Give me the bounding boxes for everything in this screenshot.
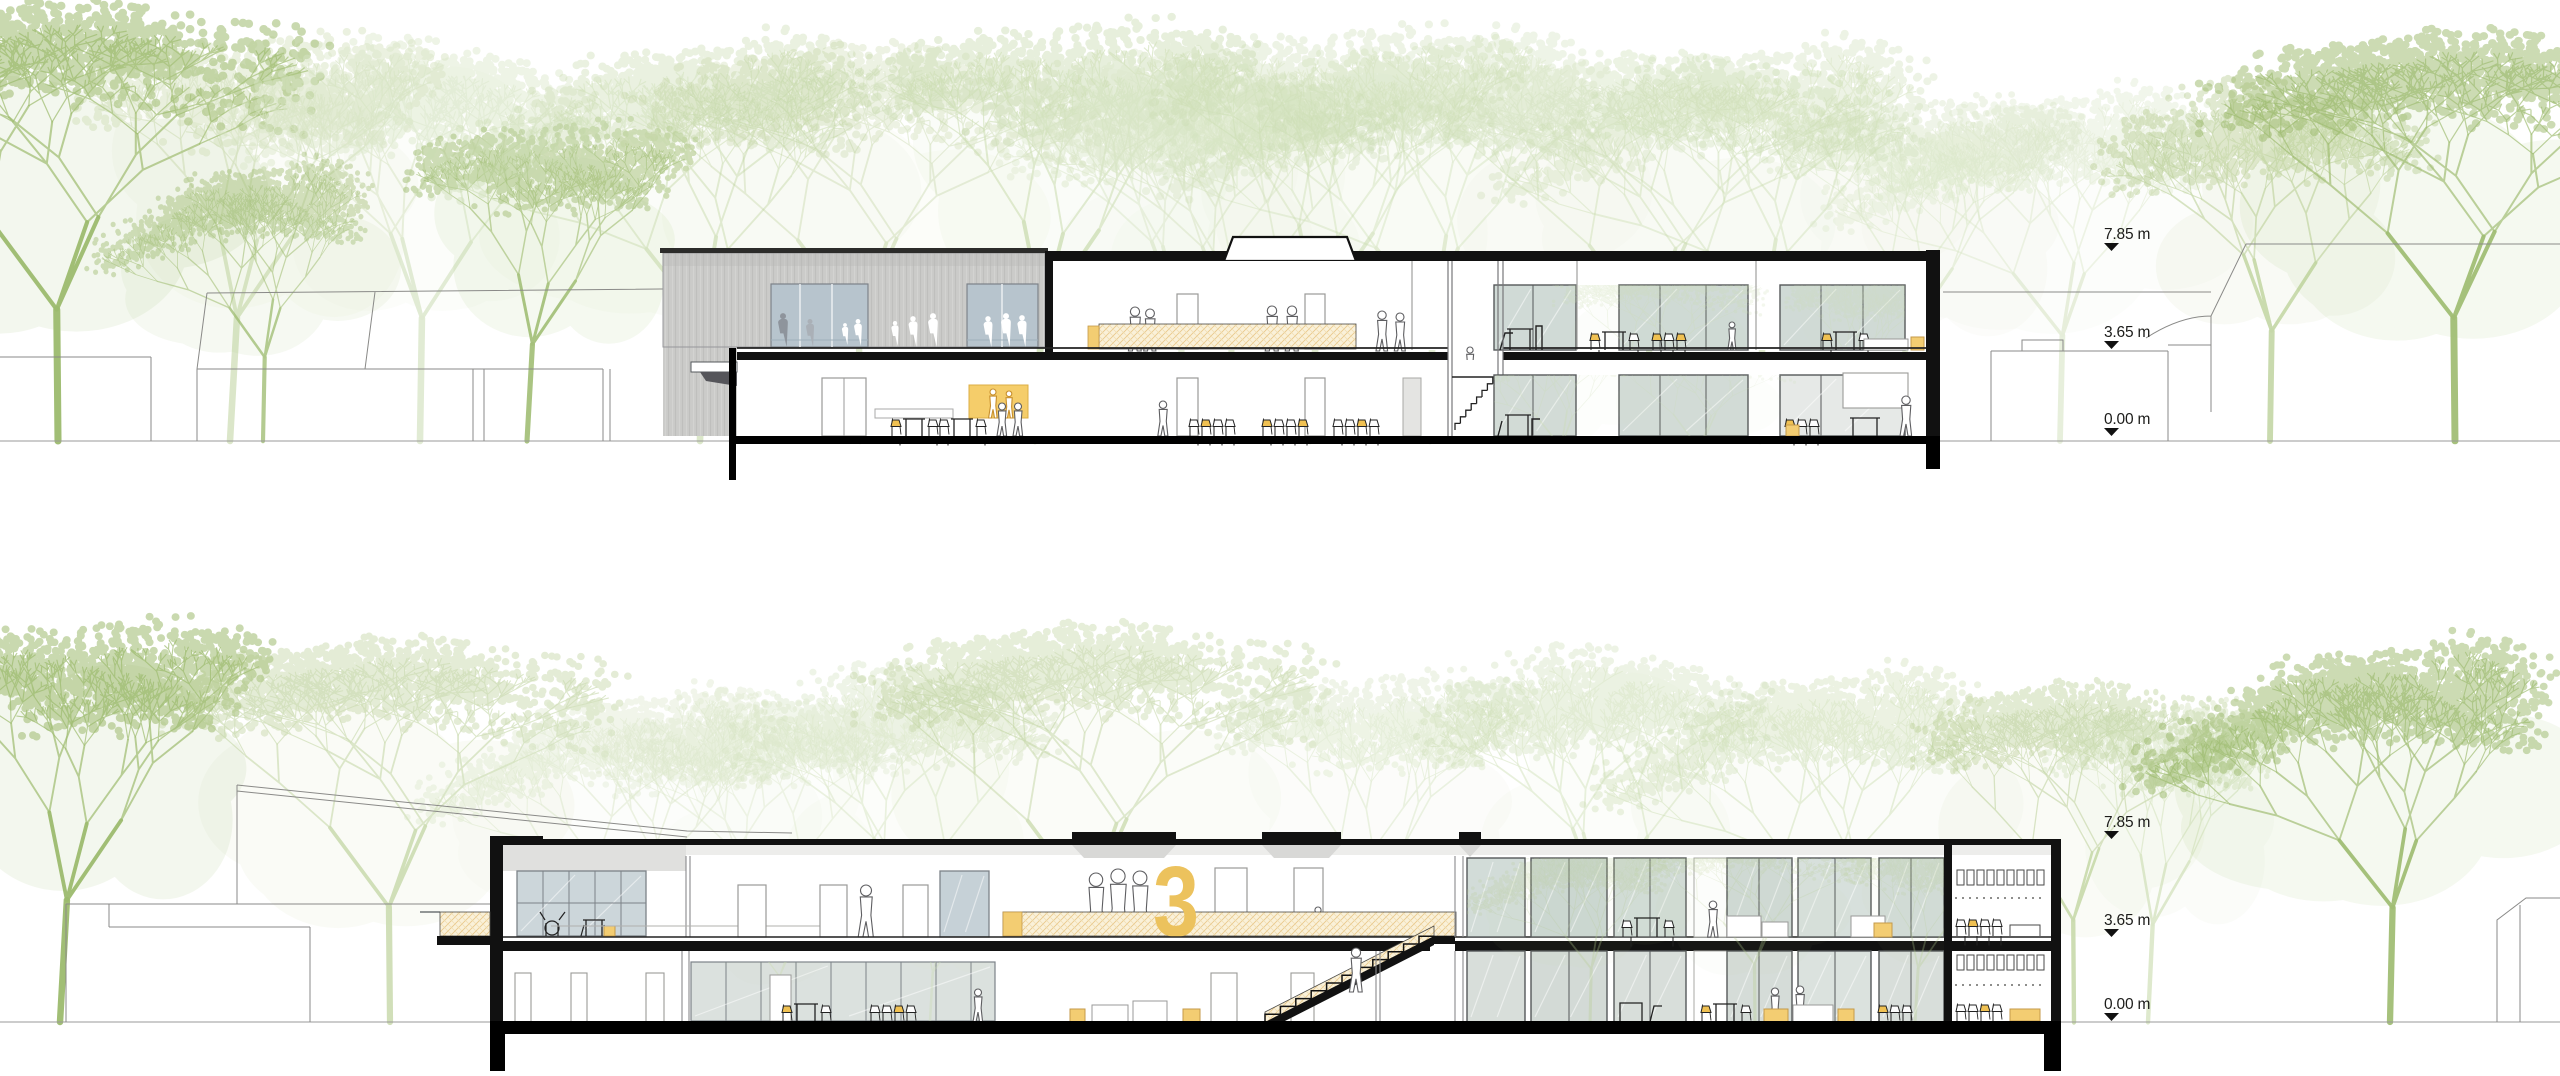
svg-text:3.65 m: 3.65 m: [2104, 912, 2150, 929]
svg-text:0.00 m: 0.00 m: [2104, 996, 2150, 1013]
svg-text:3.65 m: 3.65 m: [2104, 324, 2150, 341]
svg-text:0.00 m: 0.00 m: [2104, 411, 2150, 428]
svg-text:7.85 m: 7.85 m: [2104, 814, 2150, 831]
svg-text:7.85 m: 7.85 m: [2104, 226, 2150, 243]
